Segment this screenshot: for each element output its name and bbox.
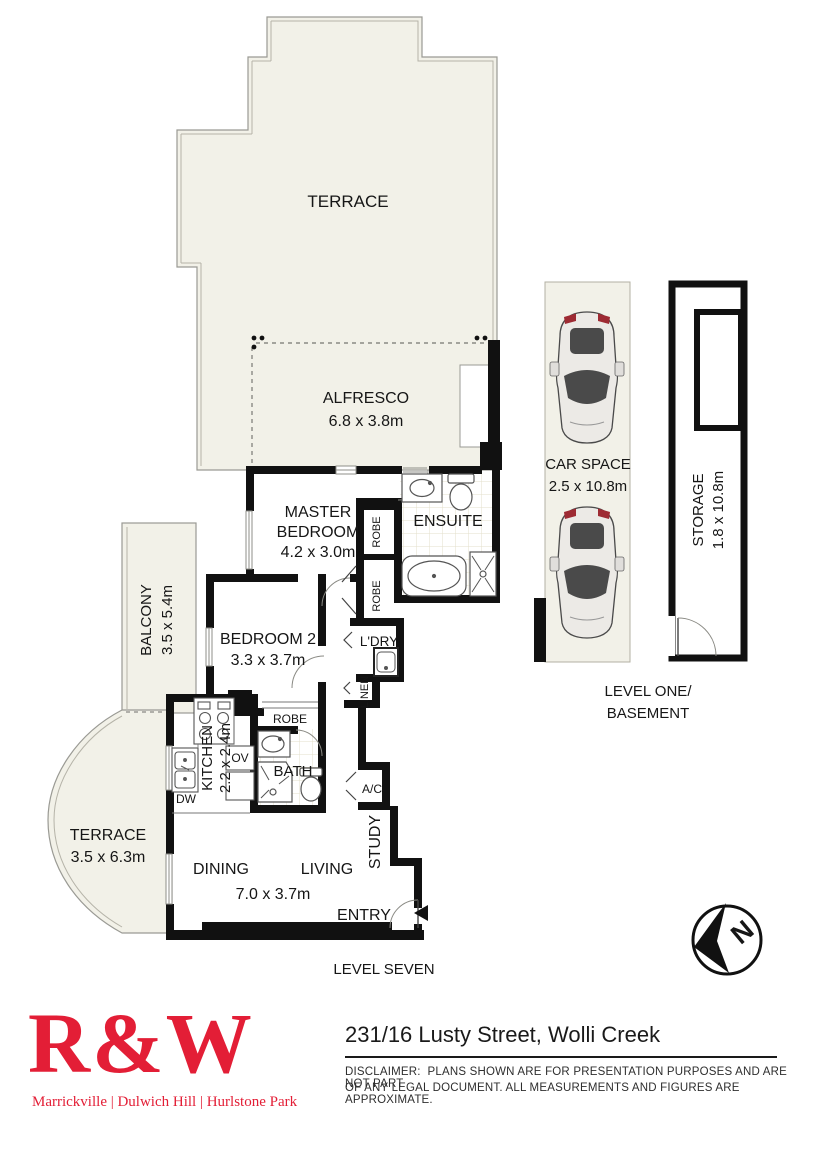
storage-cage [697,312,741,428]
alfresco-label: ALFRESCO [323,390,409,407]
terrace-top-label: TERRACE [307,192,388,211]
north-arrow-icon [694,903,729,973]
level-one-label: LEVEL ONE/ [605,683,693,700]
ac-label: A/C [362,782,382,796]
storage-area [666,284,744,658]
compass: N [693,903,761,974]
robe-label-3: ROBE [273,712,307,726]
living-dims: 7.0 x 3.7m [236,886,311,903]
laundry-label: L'DRY [360,634,398,649]
bath-vanity-icon [258,731,290,757]
car-space-label: CAR SPACE [545,456,631,473]
study-label: STUDY [367,815,384,870]
washing-machine-icon [374,648,398,676]
laundry-fixtures [374,648,398,676]
terrace-left-label: TERRACE [70,827,146,844]
bedroom2-label: BEDROOM 2 [220,631,316,648]
bath-label: BATH [274,763,313,780]
balcony-label: BALCONY [138,584,155,656]
oven-label: OV [231,751,248,765]
shower-icon [470,552,496,596]
basement-label: BASEMENT [607,705,690,722]
agency-logo: R&W [28,1000,254,1086]
robe-sliding-doors [262,702,318,708]
bedroom2-dims: 3.3 x 3.7m [231,652,306,669]
bathtub-icon [402,556,466,596]
level-seven-label: LEVEL SEVEN [333,961,434,978]
agency-tagline: Marrickville | Dulwich Hill | Hurlstone … [32,1094,297,1111]
car-icon-top [550,312,624,443]
car-space-dims: 2.5 x 10.8m [549,478,627,495]
alfresco-dims: 6.8 x 3.8m [329,413,404,430]
master-bedroom-label-2: BEDROOM [277,524,360,541]
robe-label-1: ROBE [371,516,383,547]
double-sink-icon [172,748,198,792]
entry-label: ENTRY [337,907,391,924]
terrace-left-area [48,710,172,933]
terrace-left-dims: 3.5 x 6.3m [71,849,146,866]
storage-dims: 1.8 x 10.8m [710,471,727,549]
vanity-sink-icon [402,474,442,502]
dishwasher-label: DW [176,792,197,806]
bifold-door-marks [342,566,356,800]
robe-label-2: ROBE [371,580,383,611]
footer-divider [345,1056,777,1058]
kitchen-label: KITCHEN [199,725,216,791]
living-label: LIVING [301,861,353,878]
master-bedroom-dims: 4.2 x 3.0m [281,544,356,561]
dining-label: DINING [193,861,249,878]
toilet-icon [448,474,474,510]
linen-label: LINEN [359,676,371,708]
storage-label: STORAGE [690,473,707,546]
balcony-dims: 3.5 x 5.4m [159,585,176,655]
car-icon-bottom [550,507,624,638]
ensuite-label: ENSUITE [413,513,482,530]
property-address: 231/16 Lusty Street, Wolli Creek [345,1022,660,1048]
master-bedroom-label-1: MASTER [285,504,352,521]
floor-plan-canvas: N TERRACE ALFRESCO 6.8 x 3.8m MASTER BED… [0,0,813,1000]
disclaimer-line-2: OF ANY LEGAL DOCUMENT. ALL MEASUREMENTS … [345,1082,813,1106]
alfresco-glass-recess [460,365,492,447]
